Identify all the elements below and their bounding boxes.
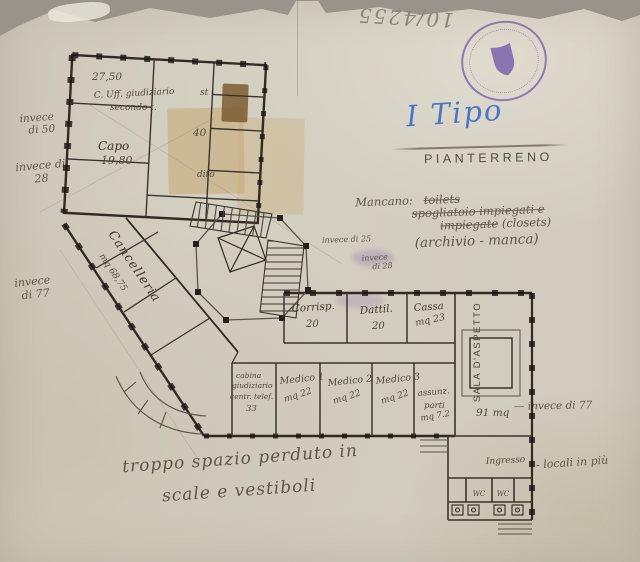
- room-label-40: 40: [192, 127, 207, 139]
- room-label-dito: dito: [197, 170, 215, 180]
- room-area-medico1: mq 22: [283, 386, 314, 404]
- room-area-medico2: mq 22: [332, 388, 363, 406]
- wing-diagonal: [64, 218, 238, 436]
- room-label-wc1: WC: [473, 490, 486, 498]
- room-area-cassa: mq 23: [414, 312, 446, 329]
- entrance-block: [448, 436, 532, 520]
- room-label-uff-giudiziario: C. Uff. giudiziario: [94, 87, 176, 101]
- room-label-st: st: [200, 88, 209, 98]
- room-area-dattil: 20: [371, 321, 385, 332]
- room-label-ingresso: Ingresso: [485, 455, 526, 467]
- room-label-wc2: WC: [497, 490, 510, 498]
- room-label-medico1: Medico 1: [278, 371, 324, 387]
- room-label-medico2: Medico 2: [326, 373, 372, 389]
- room-area-medico3: mq 22: [380, 388, 411, 406]
- room-area-assunz: mq 7.2: [420, 409, 451, 424]
- room-label-dattil: Dattil.: [358, 303, 393, 317]
- room-label-corrisp: Corrisp.: [291, 300, 335, 315]
- room-label-cabina: cabina: [236, 371, 261, 380]
- room-label-cabina-4: 33: [246, 404, 257, 414]
- room-label-assunz: assunz.: [417, 386, 450, 399]
- room-label-cabina-3: centr. telef.: [230, 392, 273, 401]
- scanned-floor-plan-sheet: 10/4255 I Tipo PIANTERRENO Mancano: toil…: [0, 0, 640, 562]
- room-label-sala-aspetto: SALA D'ASPETTO: [472, 302, 483, 402]
- room-label-cabina-2: giudiziario: [232, 381, 273, 390]
- sala-skylight: [462, 330, 520, 396]
- floor-plan-drawing: 27,50 C. Uff. giudiziario secondo t. Cap…: [0, 0, 640, 562]
- room-label-capo: Capo: [98, 139, 129, 153]
- room-label-uff-giudiziario-2: secondo t.: [110, 103, 157, 113]
- room-area-capo: 19,80: [101, 154, 133, 167]
- elevation-note: 27,50: [91, 71, 122, 83]
- room-area-corrisp: 20: [305, 319, 319, 330]
- wc-fixtures: [452, 505, 523, 515]
- room-area-sala: 91 mq: [476, 407, 510, 419]
